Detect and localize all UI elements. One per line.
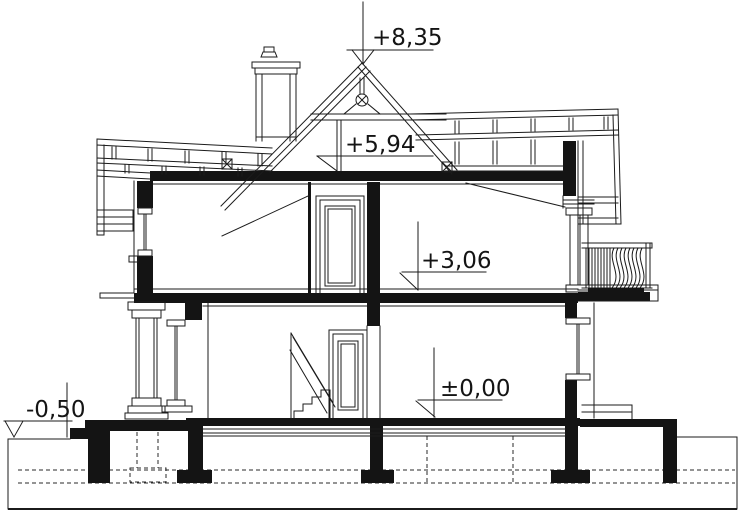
stairs [290, 333, 335, 418]
balcony-door [566, 208, 592, 292]
porch-roof-left [97, 139, 272, 235]
chimney [252, 47, 300, 141]
right-eaves-overhang [578, 109, 621, 224]
ground-right-window [566, 318, 590, 380]
level-label-ground-floor: ±0,00 [440, 376, 510, 402]
upper-interior-door [316, 196, 364, 293]
ground-left-window [162, 320, 192, 412]
balcony [578, 243, 658, 301]
porch-column [125, 302, 168, 419]
level-marker-ridge: +8,35 [347, 2, 442, 64]
level-label-attic-floor: +5,94 [345, 132, 415, 158]
balcony-railing [582, 243, 652, 295]
section-drawing: +8,35 +5,94 +3,06 ±0,00 -0,50 [0, 0, 745, 520]
level-marker-first-floor: +3,06 [400, 222, 491, 290]
section-drawing-canvas: +8,35 +5,94 +3,06 ±0,00 -0,50 [0, 0, 745, 520]
level-label-first-floor: +3,06 [421, 248, 491, 274]
level-label-ridge: +8,35 [372, 25, 442, 51]
level-marker-ground-floor: ±0,00 [416, 348, 510, 417]
upper-left-window [129, 208, 152, 262]
porch-roof-fascia [97, 139, 133, 235]
level-marker-attic-floor: +5,94 [317, 132, 433, 171]
ground-interior-door [329, 330, 367, 418]
level-label-site-ground: -0,50 [26, 397, 86, 423]
